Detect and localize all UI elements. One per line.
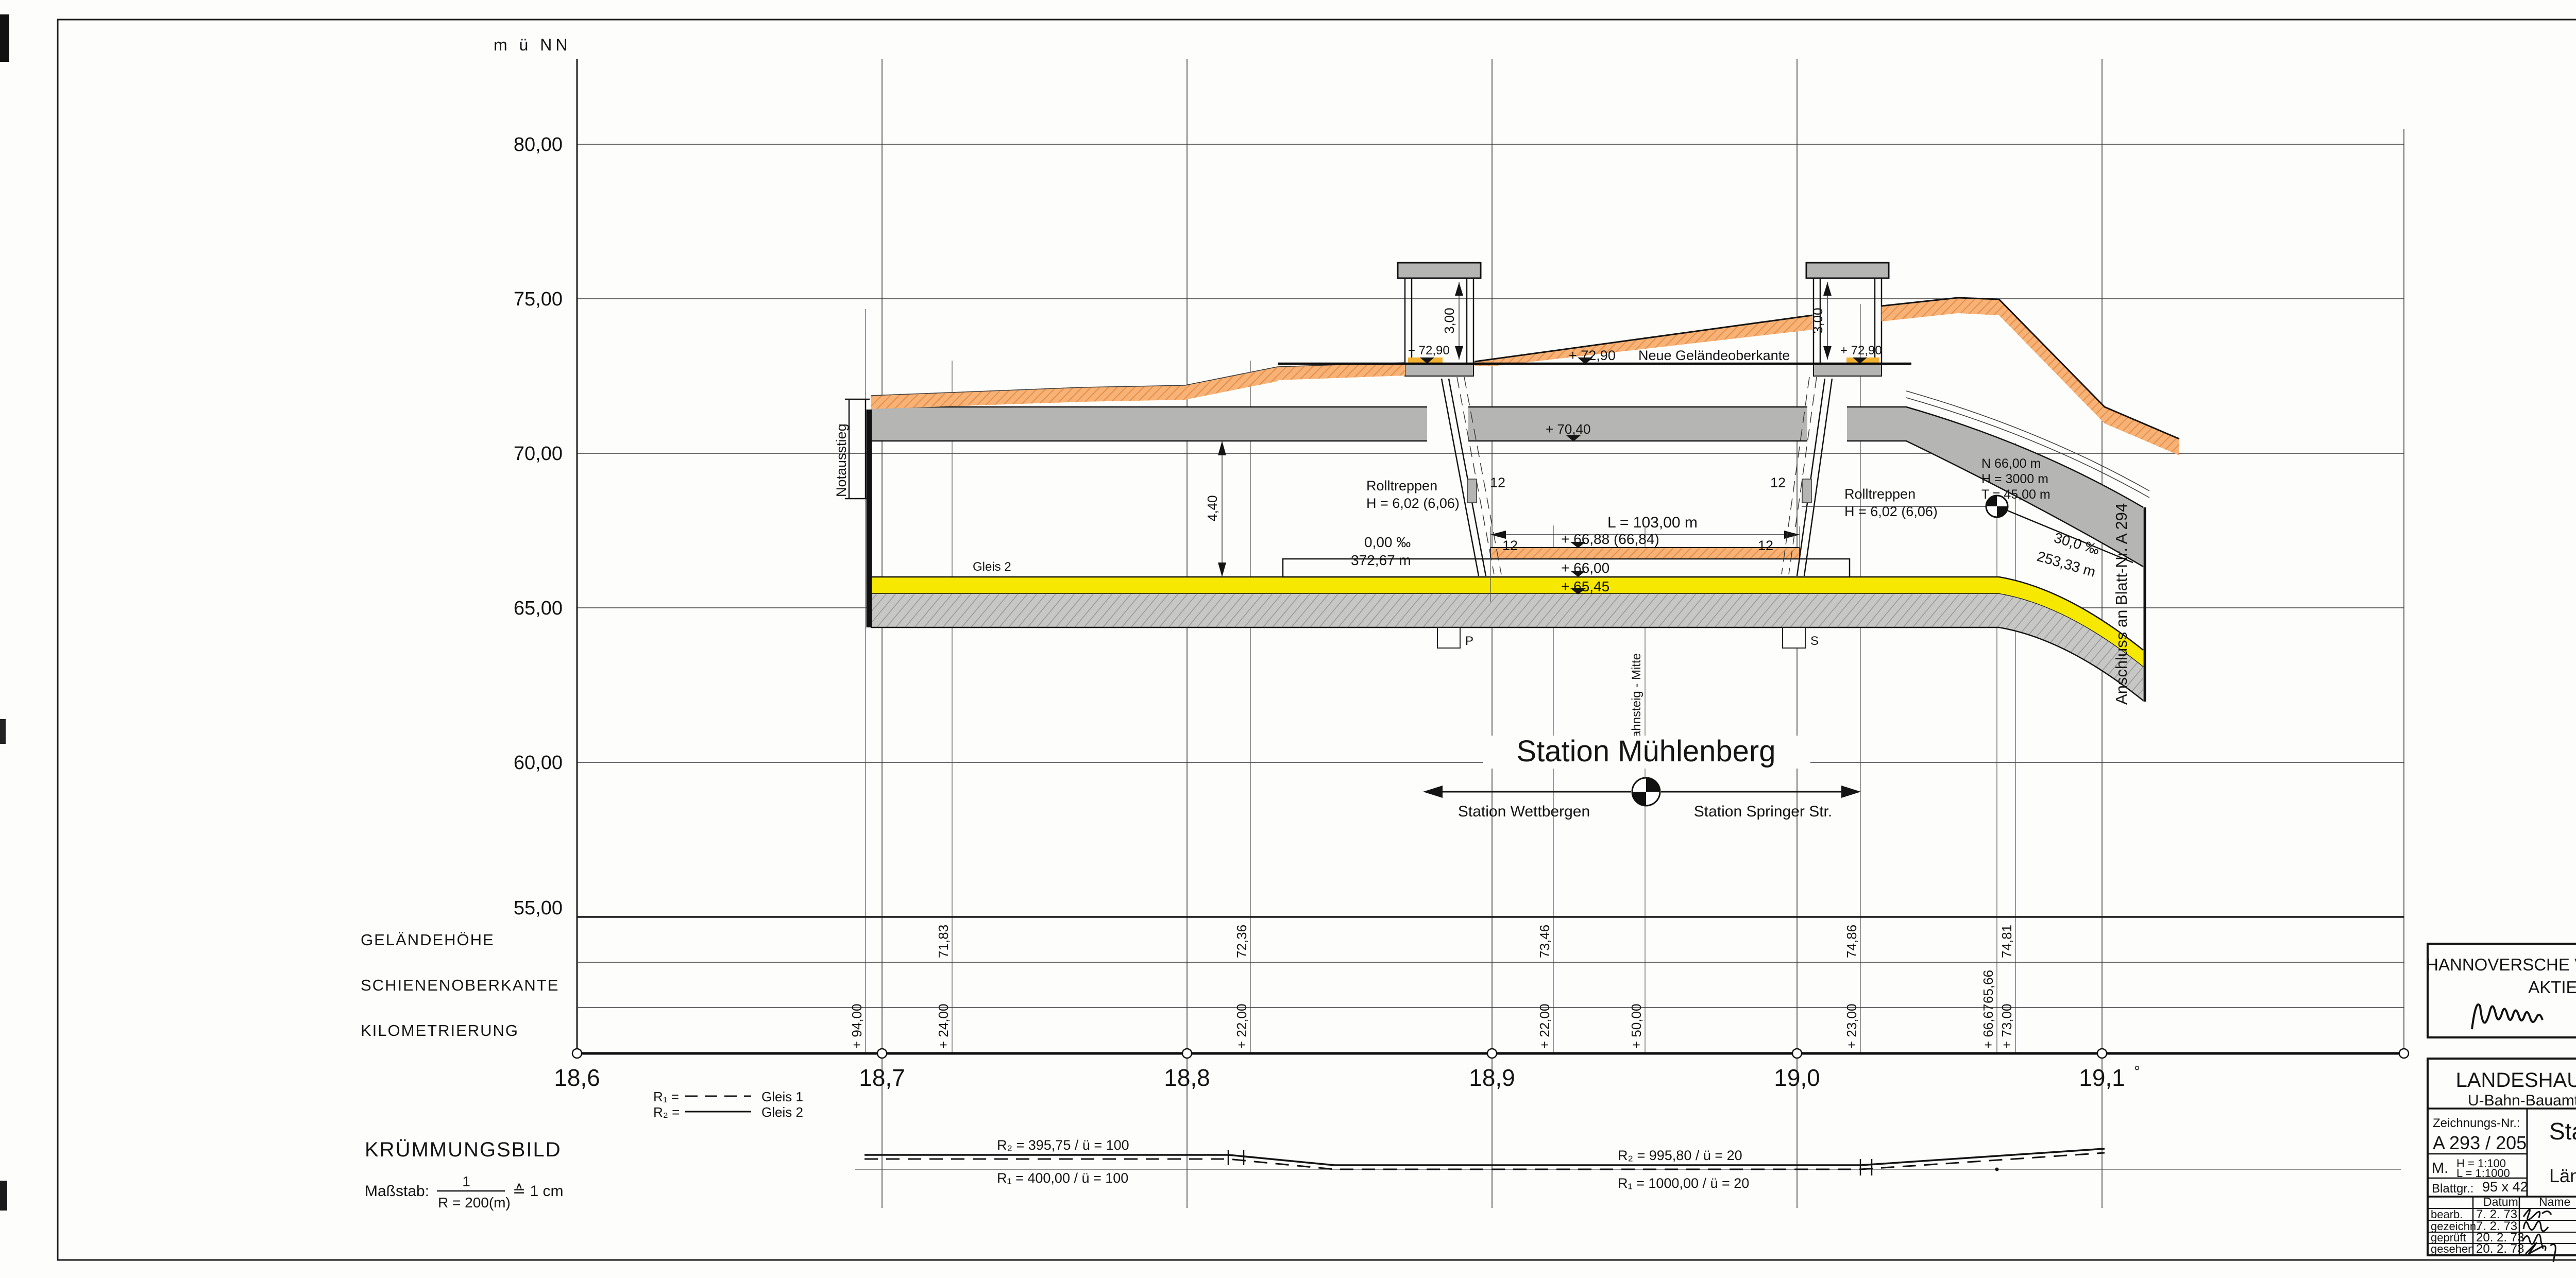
- elevation-tick: 65,00: [514, 598, 563, 619]
- km-value: + 22,00: [1537, 1004, 1552, 1049]
- km-label: 19,0: [1774, 1064, 1820, 1091]
- lhh-station-title: Station Mühlenberg: [2549, 1118, 2576, 1145]
- escalator-left-label: Rolltreppen: [1366, 478, 1437, 493]
- curve-seg1-r1: R₁ = 400,00 / ü = 100: [997, 1170, 1128, 1186]
- row-label-schienenoberkante: SCHIENENOBERKANTE: [361, 976, 559, 994]
- curve-seg2-r2: R₂ = 995,80 / ü = 20: [1618, 1148, 1742, 1163]
- lhh-section-title: Längsschnitt: [2549, 1165, 2576, 1186]
- scan-mark: [0, 14, 9, 62]
- km-label: 18,8: [1164, 1064, 1210, 1091]
- sheet-size-label: Blattgr.:: [2432, 1182, 2473, 1196]
- track-bottom-level: + 65,45: [1561, 578, 1609, 594]
- escalator-slope: 12: [1758, 538, 1773, 553]
- notausstieg-label: Notausstieg: [834, 423, 849, 497]
- escalator-slope: 12: [1502, 538, 1518, 553]
- scale-label: Maßstab:: [365, 1183, 429, 1200]
- lhh-title-block: LANDESHAUPTSTADT HANNOVER U-Bahn-Bauamt …: [2428, 1059, 2576, 1262]
- legend-r2-track: Gleis 2: [761, 1104, 803, 1120]
- legend-r1-track: Gleis 1: [761, 1089, 803, 1104]
- floor-slab: [871, 594, 2143, 701]
- drawing-no-value: A 293 / 205: [2433, 1132, 2527, 1153]
- km-degree-mark: °: [2134, 1063, 2140, 1080]
- col-datum: Datum: [2483, 1195, 2518, 1208]
- elevation-tick: 60,00: [514, 752, 563, 774]
- elevation-tick: 75,00: [514, 288, 563, 310]
- gelaende-values: 71,83 72,36 73,46 74,86 74,81: [936, 925, 2014, 958]
- sump-boxes: [1437, 627, 1805, 648]
- new-ground-label: Neue Geländeoberkante: [1638, 348, 1790, 363]
- drawing-sheet: m ü NN 80,00 75,00 70,00 65,00 60,00 55,…: [0, 0, 2576, 1278]
- kruemmung-title: KRÜMMUNGSBILD: [365, 1138, 562, 1161]
- gelaende-value: 74,81: [1999, 925, 2014, 958]
- house-left: [1398, 263, 1481, 376]
- house-left-height-dim: 3,00: [1442, 308, 1457, 334]
- new-ground-level: + 72,90: [1569, 348, 1616, 363]
- col-name: Name: [2539, 1195, 2570, 1208]
- direction-left-label: Station Wettbergen: [1458, 803, 1590, 820]
- row-label-kilometrierung: KILOMETRIERUNG: [361, 1021, 519, 1040]
- legend-r2-label: R₂ =: [653, 1104, 680, 1120]
- drawing-canvas: m ü NN 80,00 75,00 70,00 65,00 60,00 55,…: [0, 0, 2576, 1278]
- vertical-curve-block: N 66,00 m H = 3000 m T = 45,00 m: [1981, 456, 2050, 502]
- gradient-change-symbol: [1986, 496, 2008, 517]
- escalator-slope: 12: [1770, 475, 1786, 490]
- lhh-title: LANDESHAUPTSTADT HANNOVER: [2456, 1069, 2576, 1092]
- km-label: 18,6: [554, 1064, 600, 1091]
- ustra-title-block: HANNOVERSCHE VERKEHRSBETRIEBE (ÜSTRA) AK…: [2426, 944, 2576, 1037]
- escalator-slope: 12: [1490, 475, 1505, 490]
- km-value: + 50,00: [1629, 1004, 1644, 1049]
- scale-m-label: M.: [2432, 1160, 2448, 1177]
- curve-seg1-r2: R₂ = 395,75 / ü = 100: [997, 1137, 1129, 1153]
- direction-right-label: Station Springer Str.: [1694, 803, 1832, 820]
- elevation-unit-label: m ü NN: [494, 36, 571, 54]
- scale-denominator: R = 200(m): [438, 1195, 511, 1211]
- platform-length-label: L = 103,00 m: [1607, 514, 1698, 531]
- station-title: Station Mühlenberg: [1517, 735, 1776, 768]
- scan-mark: [0, 719, 6, 744]
- km-axis-labels: 18,6 18,7 18,8 18,9 19,0 19,1 °: [554, 1063, 2140, 1091]
- data-band-labels: GELÄNDEHÖHE SCHIENENOBERKANTE KILOMETRIE…: [361, 931, 559, 1040]
- scale-m-l: L = 1:1000: [2456, 1167, 2510, 1180]
- date-gesehen: 20. 2. 73: [2476, 1242, 2524, 1256]
- ustra-line1: HANNOVERSCHE VERKEHRSBETRIEBE (ÜSTRA): [2426, 955, 2576, 974]
- legend-r1-label: R₁ =: [653, 1089, 679, 1104]
- elevation-tick: 55,00: [514, 897, 563, 919]
- curve-h: H = 3000 m: [1981, 472, 2048, 486]
- drawing-no-label: Zeichnungs-Nr.:: [2433, 1116, 2520, 1130]
- sump-label-s: S: [1810, 634, 1819, 648]
- sok-value: 65,66: [1980, 970, 1996, 1003]
- escalator-right-label: Rolltreppen: [1844, 486, 1916, 502]
- km-value: + 66,67: [1980, 1004, 1996, 1049]
- km-value: + 23,00: [1844, 1004, 1859, 1049]
- km-value: + 94,00: [849, 1004, 865, 1049]
- gelaende-value: 73,46: [1537, 925, 1552, 958]
- lhh-sub-left: U-Bahn-Bauamt: [2468, 1092, 2576, 1109]
- gelaende-value: 74,86: [1844, 925, 1859, 958]
- km-label: 19,1: [2079, 1064, 2125, 1091]
- track2-label: Gleis 2: [973, 560, 1011, 574]
- scale-numerator: 1: [462, 1173, 470, 1189]
- kruemmung-legend: R₁ = Gleis 1 R₂ = Gleis 2: [653, 1089, 803, 1120]
- platform-centre-label: Bahnsteig - Mitte: [1630, 653, 1643, 746]
- platform-surface: [1490, 548, 1800, 559]
- sump-label-p: P: [1465, 634, 1473, 648]
- row-bearb: bearb.: [2431, 1208, 2463, 1221]
- sheet-border: [58, 20, 2576, 1260]
- curve-seg2-r1: R₁ = 1000,00 / ü = 20: [1618, 1175, 1749, 1191]
- row-label-gelaendehoehe: GELÄNDEHÖHE: [361, 931, 495, 949]
- gelaende-value: 72,36: [1234, 925, 1249, 958]
- scan-mark: [0, 1181, 7, 1211]
- sheet-size-value: 95 x 42: [2482, 1179, 2528, 1195]
- sheet-join-label: Anschluss an Blatt-Nr. A 294: [2112, 503, 2130, 705]
- house-right-level: + 72,90: [1840, 344, 1882, 357]
- gradient1-length: 372,67 m: [1351, 552, 1411, 568]
- escalator-left-height: H = 6,02 (6,06): [1366, 496, 1460, 511]
- scale-equivalence: ≙ 1 cm: [513, 1183, 563, 1200]
- elevation-tick: 80,00: [514, 134, 563, 156]
- km-value: + 73,00: [1999, 1004, 2014, 1049]
- gradient1-permille: 0,00 ‰: [1364, 534, 1411, 550]
- kruemmung-scale: Maßstab: 1 R = 200(m) ≙ 1 cm: [365, 1173, 563, 1211]
- elevation-tick: 70,00: [514, 443, 563, 465]
- elevation-tick-labels: 80,00 75,00 70,00 65,00 60,00 55,00: [514, 134, 563, 919]
- direction-arrows: [1423, 778, 1861, 806]
- track-top-level: + 66,00: [1561, 560, 1609, 576]
- curve-n: N 66,00 m: [1981, 456, 2041, 471]
- house-left-level: + 72,90: [1408, 344, 1450, 357]
- interior-height-label: 4,40: [1205, 495, 1220, 521]
- gelaende-value: 71,83: [936, 925, 951, 958]
- km-label: 18,9: [1469, 1064, 1515, 1091]
- roof-underside-level: + 70,40: [1546, 421, 1590, 437]
- ustra-line2: AKTIENGESELLSCHAFT: [2528, 978, 2576, 997]
- km-label: 18,7: [859, 1064, 905, 1091]
- row-gesehen: gesehen: [2431, 1242, 2474, 1255]
- km-point-values: + 94,00 + 24,00 + 22,00 + 22,00 + 50,00 …: [849, 1004, 2014, 1049]
- km-value: + 22,00: [1234, 1004, 1249, 1049]
- km-value: + 24,00: [936, 1004, 951, 1049]
